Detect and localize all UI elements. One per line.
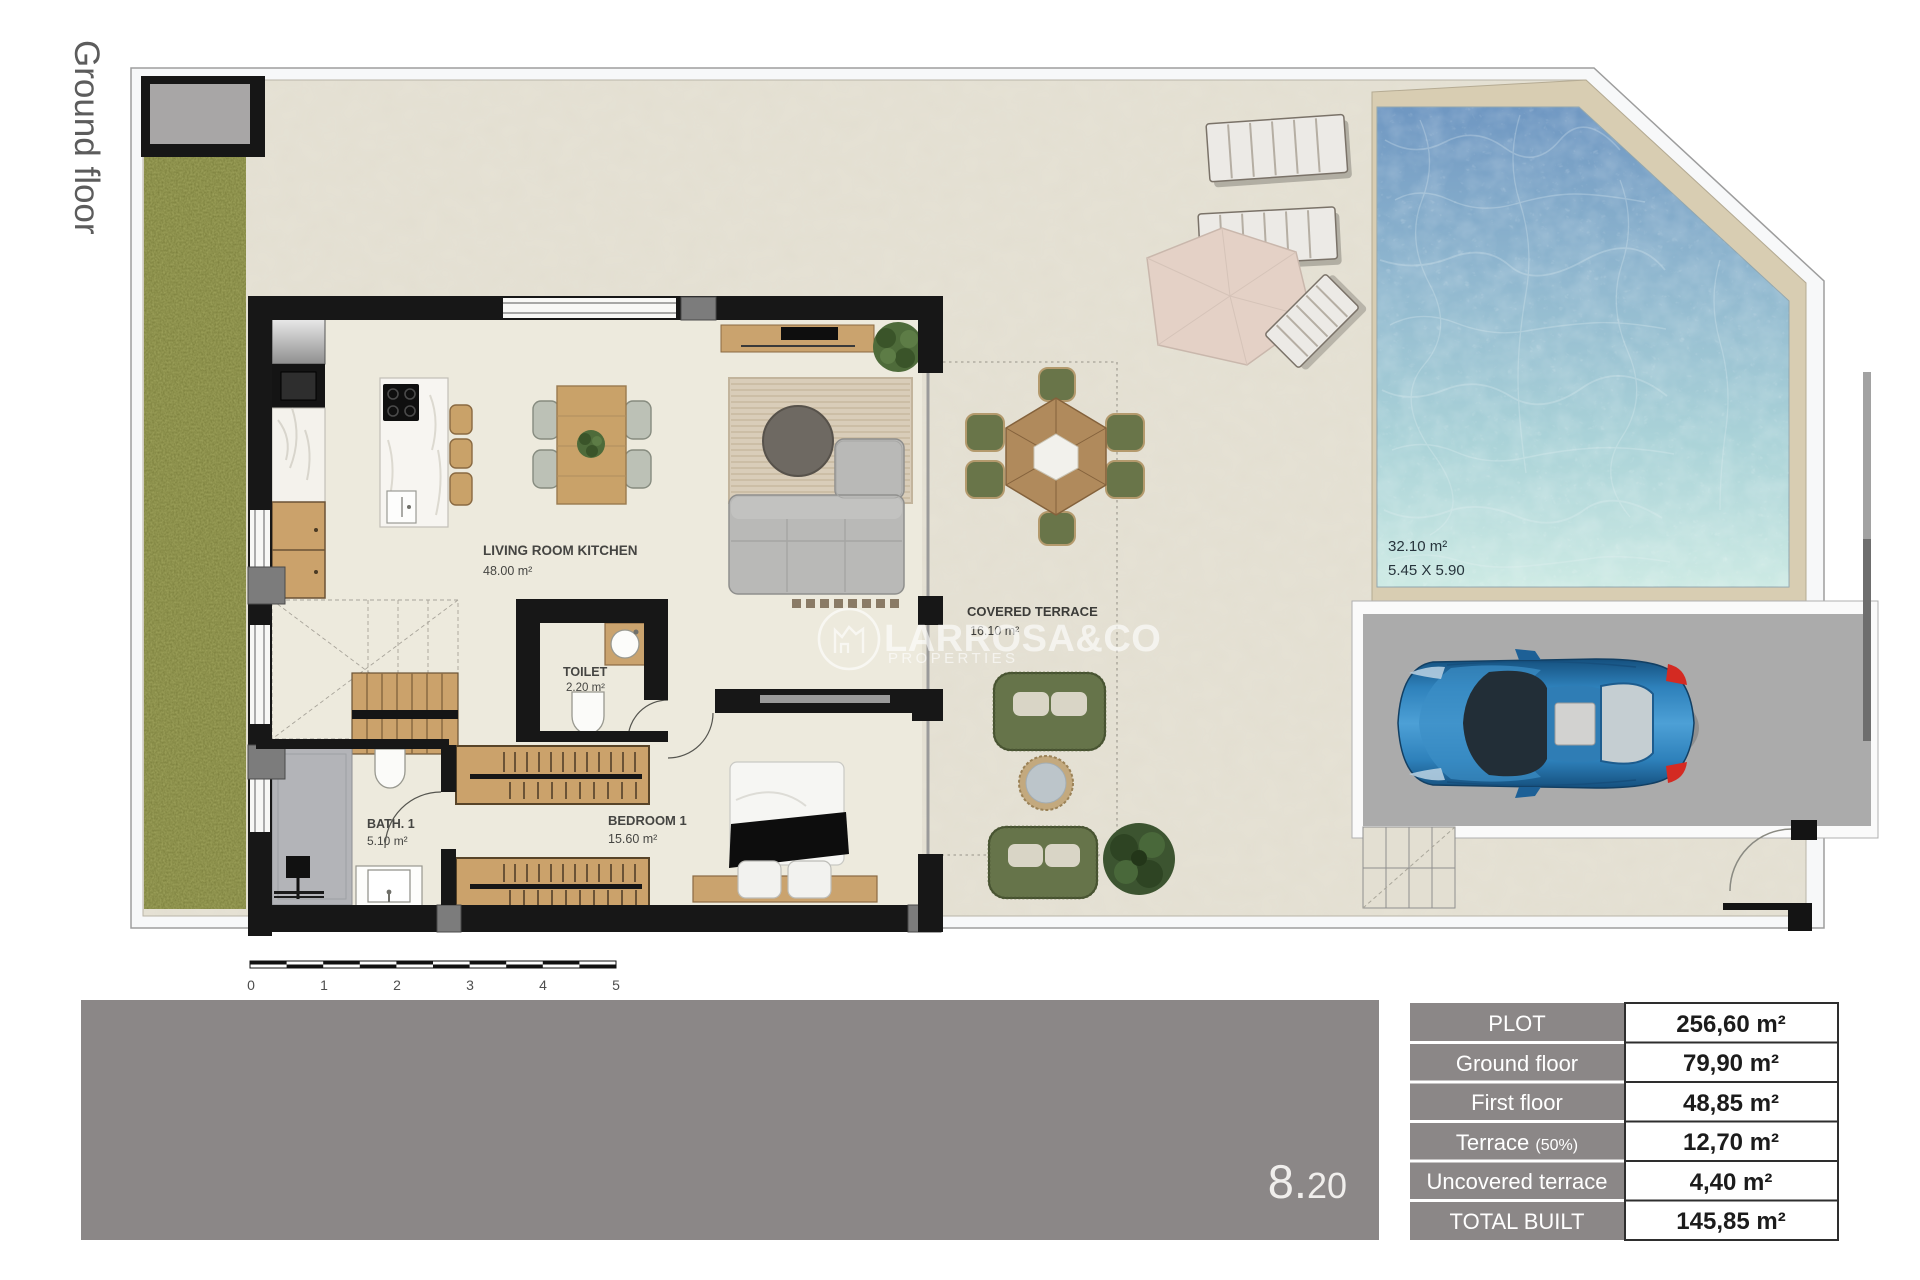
svg-text:145,85 m²: 145,85 m² — [1676, 1208, 1785, 1235]
svg-text:4: 4 — [539, 977, 547, 993]
svg-text:Ground floor: Ground floor — [67, 40, 106, 235]
svg-text:BEDROOM 1: BEDROOM 1 — [608, 813, 687, 828]
svg-text:3: 3 — [466, 977, 474, 993]
svg-text:COVERED TERRACE: COVERED TERRACE — [967, 604, 1098, 619]
svg-text:79,90 m²: 79,90 m² — [1683, 1050, 1779, 1077]
svg-text:TOILET: TOILET — [563, 665, 608, 679]
svg-text:256,60 m²: 256,60 m² — [1676, 1011, 1785, 1038]
svg-text:TOTAL BUILT: TOTAL BUILT — [1450, 1209, 1585, 1234]
svg-text:15.60 m²: 15.60 m² — [608, 832, 657, 846]
svg-text:12,70 m²: 12,70 m² — [1683, 1129, 1779, 1156]
svg-text:48,85 m²: 48,85 m² — [1683, 1090, 1779, 1117]
svg-text:48.00 m²: 48.00 m² — [483, 564, 532, 578]
svg-text:5: 5 — [612, 977, 620, 993]
svg-text:LIVING ROOM KITCHEN: LIVING ROOM KITCHEN — [483, 543, 638, 558]
svg-text:First floor: First floor — [1471, 1090, 1563, 1115]
svg-text:Uncovered terrace: Uncovered terrace — [1427, 1169, 1608, 1194]
svg-text:Ground floor: Ground floor — [1456, 1051, 1578, 1076]
svg-text:5.45 X 5.90: 5.45 X 5.90 — [1388, 562, 1465, 579]
svg-text:2.20 m²: 2.20 m² — [566, 682, 605, 694]
svg-text:2: 2 — [393, 977, 401, 993]
svg-text:5.10 m²: 5.10 m² — [367, 834, 408, 848]
svg-text:0: 0 — [247, 977, 255, 993]
svg-text:PROPERTIES: PROPERTIES — [888, 650, 1018, 667]
svg-text:4,40 m²: 4,40 m² — [1690, 1169, 1773, 1196]
svg-text:32.10 m²: 32.10 m² — [1388, 538, 1447, 555]
svg-text:PLOT: PLOT — [1488, 1011, 1545, 1036]
svg-text:1: 1 — [320, 977, 328, 993]
